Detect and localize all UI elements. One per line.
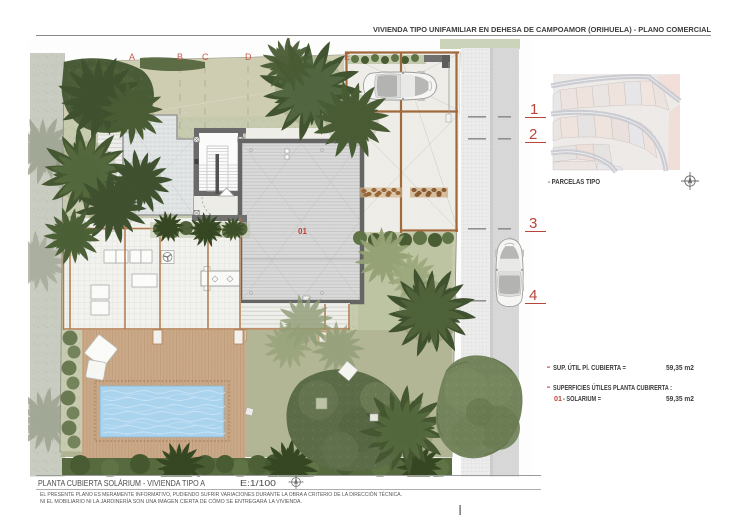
svg-text:E: E [344,52,350,62]
svg-text:59,35 m2: 59,35 m2 [666,365,694,372]
svg-text:SUPERFICIES ÚTILES PLANTA CUBI: SUPERFICIES ÚTILES PLANTA CUBIRERTA : [553,383,672,392]
svg-text:PLANTA CUBIERTA SOLÁRIUM - VIV: PLANTA CUBIERTA SOLÁRIUM - VIVIENDA TIPO… [38,478,205,488]
svg-text:D: D [245,52,252,62]
svg-text:59,35 m2: 59,35 m2 [666,396,694,403]
svg-text:1: 1 [530,101,538,118]
svg-text:- PARCELAS TIPO: - PARCELAS TIPO [548,179,600,186]
svg-text:3: 3 [529,215,537,232]
svg-text:01: 01 [554,396,562,403]
svg-text:- SOLARIUM =: - SOLARIUM = [563,396,601,403]
svg-text:C: C [202,52,209,62]
svg-text:A: A [129,52,135,62]
svg-text:4: 4 [529,287,537,304]
svg-text:VIVIENDA TIPO UNIFAMILIAR EN D: VIVIENDA TIPO UNIFAMILIAR EN DEHESA DE C… [373,25,711,34]
svg-text:EL PRESENTE PLANO ES MERAMENTE: EL PRESENTE PLANO ES MERAMENTE INFORMATI… [40,491,402,498]
svg-text:NI EL MOBILIARIO NI LA JARDINE: NI EL MOBILIARIO NI LA JARDINERÍA SON UN… [40,498,302,505]
svg-text:2: 2 [529,126,537,143]
svg-text:SUP. ÚTIL Pl. CUBIERTA =: SUP. ÚTIL Pl. CUBIERTA = [553,363,626,372]
svg-text:E:1/100: E:1/100 [240,479,277,488]
svg-text:B: B [177,52,183,62]
